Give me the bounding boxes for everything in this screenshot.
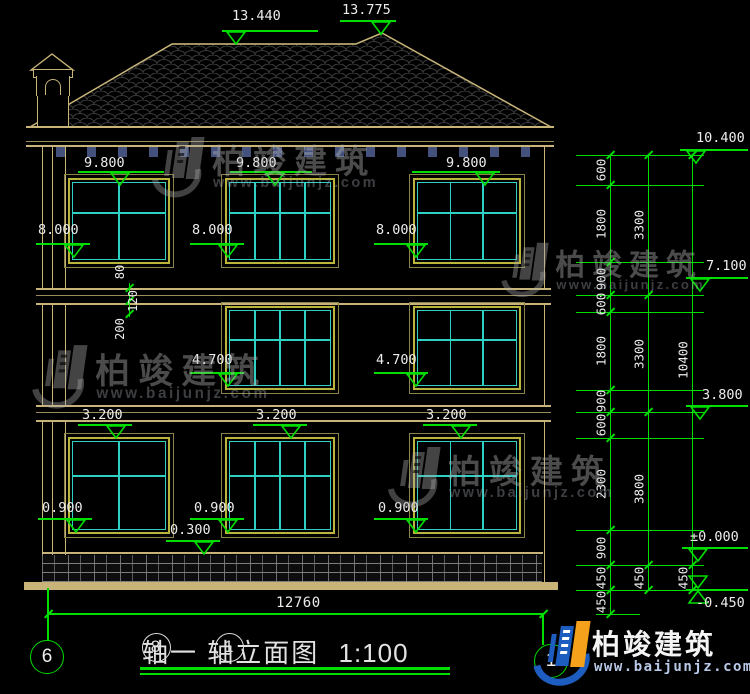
window-transom bbox=[230, 339, 330, 341]
watermark-url: www.baijunjz.com bbox=[449, 485, 614, 501]
title-axis-a: 8 bbox=[142, 633, 171, 662]
level-triangle-icon bbox=[405, 373, 427, 387]
dim-value: 1800 bbox=[594, 336, 609, 366]
elevation-label: 10.400 bbox=[696, 130, 745, 146]
window-mullion bbox=[450, 311, 452, 385]
level-triangle-icon bbox=[405, 519, 427, 533]
logo-name: 柏竣建筑 bbox=[592, 623, 716, 663]
watermark-url: www.baijunjz.com bbox=[556, 277, 705, 292]
title-scale: 1:100 bbox=[339, 638, 409, 668]
band-dim-value: 200 bbox=[113, 318, 127, 340]
elevation-label: ±0.000 bbox=[690, 529, 739, 545]
chimney-arch bbox=[45, 79, 61, 95]
elevation-label: 0.900 bbox=[194, 500, 235, 516]
dim-value: 10400 bbox=[676, 341, 691, 379]
dim-value: 900 bbox=[594, 536, 609, 559]
dim-value: 450 bbox=[632, 566, 647, 589]
level-triangle-icon bbox=[217, 244, 239, 258]
extension-line bbox=[576, 530, 704, 531]
elevation-label: 8.000 bbox=[38, 222, 79, 238]
title-underline-1 bbox=[140, 667, 450, 670]
window-mullion bbox=[118, 442, 120, 529]
elevation-label: 9.800 bbox=[84, 155, 125, 171]
extension-line bbox=[576, 185, 704, 186]
floor-band-upper bbox=[36, 288, 551, 305]
ground-slab bbox=[24, 582, 558, 590]
title-underline-2 bbox=[140, 673, 450, 675]
window-mullion bbox=[482, 311, 484, 385]
elevation-label: -0.450 bbox=[696, 595, 745, 611]
window-mullion bbox=[254, 442, 256, 529]
elevation-label: 7.100 bbox=[706, 258, 747, 274]
elevation-label: 0.900 bbox=[42, 500, 83, 516]
level-triangle-icon bbox=[450, 425, 472, 439]
watermark-building-icon bbox=[382, 444, 446, 518]
band-dim-value: 80 bbox=[113, 265, 127, 279]
extension-line bbox=[576, 155, 704, 156]
level-triangle-icon bbox=[225, 31, 247, 45]
level-triangle-icon bbox=[370, 21, 392, 35]
level-triangle-icon bbox=[687, 548, 709, 562]
level-triangle-icon bbox=[105, 425, 127, 439]
dim-value: 600 bbox=[594, 414, 609, 437]
level-triangle-icon bbox=[65, 519, 87, 533]
elevation-label: 3.200 bbox=[426, 407, 467, 423]
window-glass bbox=[72, 441, 166, 530]
watermark-building-icon bbox=[26, 342, 93, 420]
bottom-dim-line bbox=[48, 613, 543, 615]
level-triangle-icon bbox=[109, 172, 131, 186]
watermark-building-icon bbox=[146, 134, 210, 208]
window-glass bbox=[229, 441, 331, 530]
watermark-url: www.baijunjz.com bbox=[96, 385, 269, 402]
elevation-label: 3.200 bbox=[256, 407, 297, 423]
dim-value: 1800 bbox=[594, 208, 609, 238]
base-top-line bbox=[42, 552, 543, 554]
elevation-label: 3.800 bbox=[702, 387, 743, 403]
dim-chain-line bbox=[648, 155, 649, 590]
watermark-url: www.baijunjz.com bbox=[213, 175, 378, 191]
cad-elevation-drawing: 12760 6 1 8轴一 1轴立面图 1:100 柏竣建筑 www.baiju… bbox=[0, 0, 750, 694]
stone-base bbox=[42, 555, 542, 582]
dim-value: 3300 bbox=[632, 338, 647, 368]
window-transom bbox=[418, 212, 516, 214]
dim-chain-line bbox=[610, 155, 611, 614]
dim-value: 600 bbox=[594, 159, 609, 182]
elevation-label: 8.000 bbox=[192, 222, 233, 238]
elevation-label: 13.440 bbox=[232, 8, 281, 24]
window-mullion bbox=[118, 183, 120, 259]
window-mullion bbox=[304, 442, 306, 529]
dim-value: 450 bbox=[676, 566, 691, 589]
level-triangle-icon bbox=[63, 244, 85, 258]
window-glass bbox=[229, 182, 331, 260]
elevation-label: 8.000 bbox=[376, 222, 417, 238]
dim-value: 3800 bbox=[632, 473, 647, 503]
extension-line bbox=[596, 614, 640, 615]
window-transom bbox=[230, 212, 330, 214]
dim-value: 450 bbox=[594, 566, 609, 589]
level-triangle-icon bbox=[405, 244, 427, 258]
level-triangle-icon bbox=[474, 172, 496, 186]
logo-url: www.baijunjz.com bbox=[594, 659, 750, 675]
level-triangle-icon bbox=[280, 425, 302, 439]
window-mullion bbox=[279, 442, 281, 529]
window-mullion bbox=[482, 183, 484, 259]
window-transom bbox=[73, 212, 165, 214]
drawing-title: 8轴一 1轴立面图 1:100 bbox=[142, 633, 409, 670]
band-dim-value: 120 bbox=[126, 290, 140, 312]
watermark-building-icon bbox=[496, 240, 554, 307]
elevation-label: 0.300 bbox=[170, 522, 211, 538]
window-transom bbox=[230, 475, 330, 477]
dim-value: 3300 bbox=[632, 210, 647, 240]
dim-value: 600 bbox=[594, 292, 609, 315]
dim-chain-line bbox=[692, 155, 693, 590]
elevation-label: 13.775 bbox=[342, 2, 391, 18]
axis-bubble-left: 6 bbox=[30, 640, 64, 674]
level-triangle-icon bbox=[217, 519, 239, 533]
elevation-label: 9.800 bbox=[446, 155, 487, 171]
window-mullion bbox=[304, 183, 306, 259]
window-transom bbox=[418, 339, 516, 341]
window-mullion bbox=[254, 183, 256, 259]
window bbox=[413, 306, 521, 390]
window-mullion bbox=[279, 311, 281, 385]
bottom-dim-label: 12760 bbox=[276, 595, 321, 611]
chimney-body bbox=[36, 76, 70, 96]
window-glass bbox=[417, 310, 517, 386]
extension-line bbox=[576, 438, 704, 439]
roof-outline bbox=[30, 33, 551, 127]
window-mullion bbox=[279, 183, 281, 259]
logo-building-icon bbox=[524, 618, 599, 694]
elevation-label: 4.700 bbox=[376, 352, 417, 368]
window-mullion bbox=[304, 311, 306, 385]
window-transom bbox=[73, 475, 165, 477]
level-triangle-icon bbox=[193, 541, 215, 555]
window-mullion bbox=[450, 183, 452, 259]
